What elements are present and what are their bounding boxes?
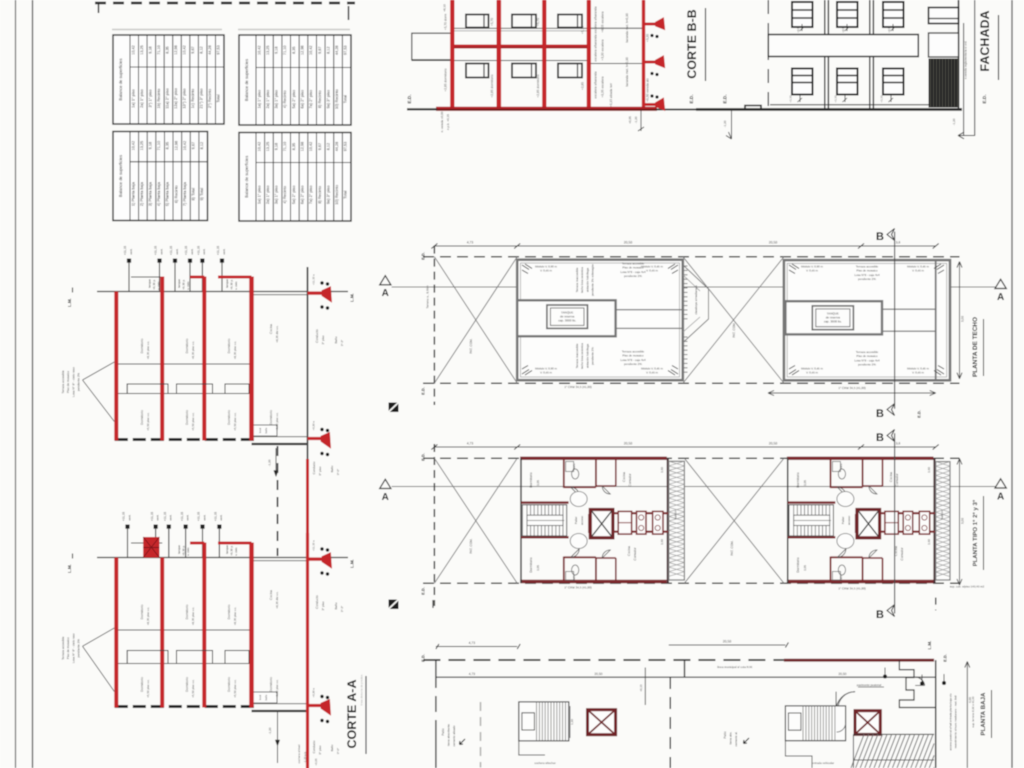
svg-text:9) Total: 9) Total: [199, 188, 204, 201]
svg-text:+11,15: +11,15: [197, 512, 201, 522]
svg-text:Dormitorio: Dormitorio: [796, 557, 800, 572]
svg-text:13,25: 13,25: [266, 142, 270, 152]
svg-text:Baño: Baño: [334, 336, 338, 343]
svg-text:44,28: 44,28: [335, 142, 339, 152]
svg-text:Comedor: Comedor: [628, 473, 632, 487]
svg-text:6a) 2° piso: 6a) 2° piso: [300, 90, 305, 109]
svg-text:E.D.: E.D.: [421, 387, 426, 395]
svg-text:B: B: [876, 408, 884, 420]
svg-text:3,05: 3,05: [536, 480, 540, 486]
svg-text:+11,15 v.: +11,15 v.: [312, 274, 316, 285]
svg-text:3) Planta baja: 3) Planta baja: [148, 181, 153, 206]
svg-text:cemento alisado: cemento alisado: [452, 725, 456, 746]
svg-text:9a) 3° piso: 9a) 3° piso: [325, 90, 330, 109]
svg-text:PAT. COM.: PAT. COM.: [732, 322, 736, 338]
svg-text:6a) 2° piso: 6a) 2° piso: [300, 185, 305, 204]
svg-text:10,42: 10,42: [309, 45, 313, 55]
svg-text:3° piso: 3° piso: [321, 601, 325, 611]
svg-text:v. cielo: v. cielo: [234, 281, 238, 290]
svg-text:tanque: tanque: [225, 545, 229, 554]
svg-text:+5,70: +5,70: [490, 18, 494, 26]
svg-text:+1,10: +1,10: [834, 95, 838, 103]
svg-text:9,67: 9,67: [192, 142, 196, 149]
svg-text:12a) 2° piso: 12a) 2° piso: [173, 88, 178, 109]
svg-text:9a) 3° piso: 9a) 3° piso: [325, 185, 330, 204]
svg-text:+11,15: +11,15: [197, 246, 201, 256]
svg-text:+9,30 p.: +9,30 p.: [230, 279, 234, 290]
svg-text:1° CRM 34,5 (41,00): 1° CRM 34,5 (41,00): [838, 587, 866, 591]
svg-text:+9,30 p.: +9,30 p.: [152, 279, 156, 290]
svg-text:21°) 3° piso: 21°) 3° piso: [199, 88, 204, 108]
svg-text:-1,20: -1,20: [634, 116, 638, 123]
svg-text:3,8: 3,8: [896, 442, 901, 446]
svg-text:+5,70 dorm: +5,70 dorm: [444, 14, 448, 31]
svg-text:vent.: vent.: [129, 248, 133, 254]
svg-text:E.D.: E.D.: [407, 95, 412, 104]
svg-text:0° piso: 0° piso: [318, 466, 322, 475]
svg-text:20,50: 20,50: [624, 442, 633, 446]
svg-text:+5,70: +5,70: [581, 26, 585, 34]
svg-text:2) Planta baja: 2) Planta baja: [139, 181, 144, 206]
svg-text:+0,05: +0,05: [628, 116, 632, 124]
svg-text:71,10: 71,10: [157, 141, 161, 151]
svg-text:3,60: 3,60: [927, 467, 931, 473]
svg-text:20,50: 20,50: [769, 241, 778, 245]
svg-text:+0,15: +0,15: [639, 684, 643, 692]
svg-text:Baño: Baño: [334, 602, 338, 609]
svg-text:Baño: Baño: [573, 574, 576, 581]
svg-text:A: A: [382, 492, 389, 503]
svg-text:cap. 3000 lts.: cap. 3000 lts.: [824, 320, 842, 324]
svg-text:Dormitorio: Dormitorio: [227, 677, 231, 692]
svg-text:9,18: 9,18: [149, 142, 153, 149]
svg-text:n.p.b. +0,15: n.p.b. +0,15: [446, 114, 450, 130]
svg-text:+11,15: +11,15: [169, 246, 173, 256]
svg-text:1c) Recinto: 1c) Recinto: [190, 89, 195, 109]
svg-text:8,12: 8,12: [200, 142, 204, 149]
svg-text:10,42: 10,42: [131, 45, 135, 55]
svg-text:10,42: 10,42: [131, 141, 135, 151]
svg-text:+11,15: +11,15: [122, 512, 126, 522]
svg-text:PLANTA TIPO 1° 2° y 3°: PLANTA TIPO 1° 2° y 3°: [972, 499, 979, 566]
svg-text:cochera s/techar: cochera s/techar: [534, 761, 555, 765]
svg-text:sup. terreno 8,66 x 41,00: sup. terreno 8,66 x 41,00: [971, 696, 975, 728]
svg-text:4,73: 4,73: [467, 442, 474, 446]
svg-text:vent.: vent.: [175, 248, 179, 254]
svg-text:techo losa cerámica: techo losa cerámica: [580, 343, 584, 369]
svg-text:V. 0,45 m: V. 0,45 m: [646, 371, 658, 375]
svg-text:+5,50 piso v.c.: +5,50 piso v.c.: [146, 679, 150, 698]
svg-text:sup. cub. s/piso 140,40 m2: sup. cub. s/piso 140,40 m2: [950, 585, 985, 589]
svg-text:v. cielo: v. cielo: [186, 547, 190, 556]
svg-text:10,42: 10,42: [183, 45, 187, 55]
svg-text:44,28: 44,28: [335, 45, 339, 55]
svg-text:Total: Total: [216, 94, 221, 102]
svg-text:12,98: 12,98: [301, 142, 305, 152]
svg-text:+8,10: +8,10: [443, 4, 447, 12]
svg-text:Cocina: Cocina: [627, 546, 631, 556]
svg-text:CORTE B-B: CORTE B-B: [685, 9, 699, 78]
svg-text:1a) 1° piso: 1a) 1° piso: [256, 90, 261, 109]
svg-text:V. 0,45 m: V. 0,45 m: [540, 371, 552, 375]
svg-text:+2,85 dormitorio: +2,85 dormitorio: [444, 68, 448, 91]
svg-text:8,12: 8,12: [200, 46, 204, 53]
svg-text:4) Planta baja: 4) Planta baja: [156, 181, 161, 206]
svg-text:V. 0,45 m: V. 0,45 m: [806, 371, 818, 375]
svg-text:3°-3°: 3°-3°: [340, 606, 344, 613]
svg-text:3,60: 3,60: [660, 539, 664, 545]
svg-text:10,42: 10,42: [309, 142, 313, 152]
svg-text:0°-0°: 0°-0°: [336, 748, 340, 754]
svg-text:Terraza inaccesible: Terraza inaccesible: [575, 267, 579, 292]
svg-text:+8,35 piso v.c.: +8,35 piso v.c.: [191, 607, 195, 626]
svg-text:PAT. COM.: PAT. COM.: [730, 540, 734, 556]
svg-text:PAT. COM.: PAT. COM.: [469, 338, 473, 354]
svg-text:10) Recinto: 10) Recinto: [334, 185, 339, 205]
svg-text:8,12: 8,12: [326, 47, 330, 54]
svg-text:2a) 1° piso: 2a) 1° piso: [139, 89, 144, 108]
svg-text:Dormitorio: Dormitorio: [227, 410, 231, 425]
svg-text:Cocina: Cocina: [269, 324, 273, 334]
svg-text:Comedor: Comedor: [633, 547, 637, 561]
svg-text:-1,20: -1,20: [268, 727, 272, 734]
svg-text:baranda met. h=0,90: baranda met. h=0,90: [625, 57, 629, 87]
svg-text:71,10: 71,10: [157, 45, 161, 55]
svg-text:0° piso: 0° piso: [318, 745, 322, 754]
svg-text:+11,15: +11,15: [163, 512, 167, 522]
svg-text:V. 0,45 m: V. 0,45 m: [540, 269, 552, 273]
svg-text:12,98: 12,98: [301, 45, 305, 55]
svg-text:Dormitorio: Dormitorio: [185, 410, 189, 425]
svg-text:97,53: 97,53: [344, 142, 348, 152]
svg-text:71,10: 71,10: [283, 142, 287, 152]
svg-text:7a) 2° piso: 7a) 2° piso: [308, 185, 313, 204]
svg-text:+4,9: +4,9: [887, 27, 891, 33]
svg-text:8,35: 8,35: [166, 142, 170, 149]
svg-text:+4,9: +4,9: [841, 27, 845, 33]
svg-text:baranda met. h=0,90: baranda met. h=0,90: [625, 13, 629, 43]
svg-text:13°) 2° piso: 13°) 2° piso: [182, 88, 187, 108]
svg-text:3°-3°: 3°-3°: [340, 340, 344, 347]
svg-text:Palier: Palier: [841, 517, 845, 525]
svg-text:línea divisoria de predios: línea divisoria de predios: [360, 674, 364, 706]
svg-text:pendiente 2%: pendiente 2%: [77, 372, 81, 391]
svg-text:4,73: 4,73: [469, 641, 476, 645]
svg-text:tanque: tanque: [148, 279, 152, 288]
svg-text:2a) 1° piso: 2a) 1° piso: [265, 185, 270, 204]
svg-text:44,28: 44,28: [208, 45, 212, 55]
svg-text:97,53: 97,53: [217, 45, 221, 55]
svg-text:L.M.: L.M.: [350, 293, 355, 302]
svg-text:+9,30 p.: +9,30 p.: [182, 545, 186, 556]
svg-text:+2,85 dormitorio: +2,85 dormitorio: [490, 74, 494, 97]
svg-text:A: A: [997, 292, 1004, 303]
svg-text:tierra abs.: tierra abs.: [729, 731, 733, 744]
svg-text:tanque: tanque: [225, 279, 229, 288]
svg-text:13,25: 13,25: [266, 45, 270, 55]
svg-text:balcón: balcón: [940, 510, 944, 519]
svg-text:Dormitorio: Dormitorio: [185, 604, 189, 619]
svg-text:8) Total: 8) Total: [191, 188, 196, 201]
svg-text:n. vereda ±0,00: n. vereda ±0,00: [440, 111, 444, 132]
svg-text:71,10: 71,10: [283, 45, 287, 55]
svg-text:Dormitorio: Dormitorio: [185, 677, 189, 692]
svg-text:E.D.: E.D.: [421, 252, 426, 260]
svg-text:Cocina: Cocina: [269, 590, 273, 600]
svg-text:Balance de superficies: Balance de superficies: [244, 156, 249, 198]
svg-text:Baño: Baño: [573, 463, 576, 470]
svg-text:Baño: Baño: [840, 463, 843, 470]
svg-text:1a) 1° piso: 1a) 1° piso: [130, 89, 135, 108]
svg-text:20,50: 20,50: [594, 672, 602, 676]
svg-text:10) Recinto: 10) Recinto: [334, 89, 339, 109]
svg-text:-1,20: -1,20: [268, 459, 272, 466]
svg-text:9,67: 9,67: [318, 143, 322, 150]
svg-text:Losa N° 8° - cielo raso: Losa N° 8° - cielo raso: [71, 633, 75, 663]
svg-text:3,60: 3,60: [660, 467, 664, 473]
svg-text:E.D.: E.D.: [421, 587, 426, 595]
svg-text:5a) 2° piso: 5a) 2° piso: [291, 185, 296, 204]
svg-text:A: A: [382, 288, 389, 299]
svg-text:tanque: tanque: [177, 545, 181, 554]
svg-text:vent.: vent.: [202, 248, 206, 254]
svg-text:8) Recinto: 8) Recinto: [317, 90, 322, 108]
svg-text:pendiente 2%: pendiente 2%: [591, 347, 595, 365]
svg-text:9,18: 9,18: [275, 47, 279, 54]
svg-text:9,67: 9,67: [318, 47, 322, 54]
svg-text:Dormitorio: Dormitorio: [140, 677, 144, 692]
svg-text:3,05: 3,05: [536, 565, 540, 571]
svg-text:vent.: vent.: [185, 514, 189, 520]
svg-text:línea municipal s/ cota N.M.: línea municipal s/ cota N.M.: [717, 665, 753, 669]
svg-text:techo losa cerámica: techo losa cerámica: [580, 267, 584, 293]
svg-text:97,53: 97,53: [344, 45, 348, 55]
svg-text:claraboya s/medianera: claraboya s/medianera: [694, 285, 698, 315]
svg-text:Dormitorio: Dormitorio: [529, 472, 533, 487]
svg-text:3a) 1° piso: 3a) 1° piso: [274, 90, 279, 109]
svg-text:9,67: 9,67: [191, 46, 195, 53]
svg-text:Conducto: Conducto: [315, 329, 319, 343]
svg-text:+8,35 piso v.c.: +8,35 piso v.c.: [191, 341, 195, 360]
svg-text:8,35: 8,35: [292, 143, 296, 150]
svg-text:Dormitorio: Dormitorio: [227, 338, 231, 353]
svg-text:+5,50 piso v.c.: +5,50 piso v.c.: [233, 679, 237, 698]
svg-text:+0,30 v.: +0,30 v.: [312, 420, 316, 430]
svg-text:Comedor: Comedor: [900, 547, 904, 561]
svg-text:1° CRM 34,5 (41,00): 1° CRM 34,5 (41,00): [564, 586, 592, 590]
svg-text:1° CRM 34,5 (41,00): 1° CRM 34,5 (41,00): [838, 386, 866, 390]
svg-text:baño: baño: [265, 427, 268, 433]
svg-text:V. 0,45 m: V. 0,45 m: [912, 269, 924, 273]
svg-text:cochera s/nivel: cochera s/nivel: [297, 744, 301, 763]
svg-text:9,18: 9,18: [275, 143, 279, 150]
svg-text:+5,50 piso v.c.: +5,50 piso v.c.: [146, 412, 150, 431]
svg-text:13,25: 13,25: [140, 141, 144, 151]
svg-text:acceso: acceso: [580, 515, 584, 525]
svg-text:Dormitorio: Dormitorio: [185, 338, 189, 353]
svg-text:+5,70: +5,70: [536, 18, 540, 26]
svg-text:+11,15: +11,15: [184, 246, 188, 256]
svg-text:3,05: 3,05: [803, 480, 807, 486]
svg-text:Dormitorio: Dormitorio: [796, 472, 800, 487]
svg-text:pavimento peatonal: pavimento peatonal: [857, 683, 882, 687]
svg-text:acceso: acceso: [847, 515, 851, 525]
svg-text:L.M.: L.M.: [350, 559, 355, 568]
svg-text:+0,30 vereda alz: +0,30 vereda alz: [646, 78, 650, 102]
svg-text:aislación hidrófuga: aislación hidrófuga: [585, 268, 589, 292]
svg-text:B: B: [876, 609, 884, 621]
svg-text:vent.: vent.: [155, 514, 159, 520]
svg-text:L.M.: L.M.: [67, 564, 72, 573]
svg-text:+5,50 piso v.c.: +5,50 piso v.c.: [191, 679, 195, 698]
svg-text:+11,15: +11,15: [154, 246, 158, 256]
svg-text:+11,15: +11,15: [150, 512, 154, 522]
svg-text:+8,35 piso v.c.: +8,35 piso v.c.: [146, 607, 150, 626]
svg-text:+8,35 piso v.c.: +8,35 piso v.c.: [233, 341, 237, 360]
svg-text:vent.: vent.: [190, 248, 194, 254]
svg-text:+0,15 alzada terr: +0,15 alzada terr: [609, 82, 613, 107]
svg-text:aislación hidrófuga: aislación hidrófuga: [585, 344, 589, 368]
svg-text:Piso de mosaico: Piso de mosaico: [66, 637, 70, 659]
svg-text:vent.: vent.: [219, 514, 223, 520]
svg-text:10,42: 10,42: [257, 45, 261, 55]
svg-text:+9,30 p.: +9,30 p.: [230, 545, 234, 556]
svg-text:PAT. COM.: PAT. COM.: [469, 538, 473, 554]
svg-text:3,00: 3,00: [961, 316, 965, 322]
svg-text:10,42: 10,42: [183, 141, 187, 151]
svg-text:Balance de superficies: Balance de superficies: [118, 155, 123, 197]
svg-text:1,20: 1,20: [570, 719, 574, 725]
svg-text:+11,15: +11,15: [123, 246, 127, 256]
svg-text:E.D.: E.D.: [689, 95, 694, 104]
svg-text:4,73: 4,73: [469, 672, 475, 676]
svg-text:tierra absorbente: tierra absorbente: [447, 724, 451, 746]
svg-text:3a) 1° piso: 3a) 1° piso: [274, 185, 279, 204]
svg-text:7a) 2° piso: 7a) 2° piso: [308, 90, 313, 109]
svg-text:3,60: 3,60: [927, 539, 931, 545]
svg-text:Piso de mosaico: Piso de mosaico: [66, 371, 70, 393]
svg-text:E.D.: E.D.: [421, 654, 426, 662]
svg-text:+1,10: +1,10: [789, 95, 793, 103]
svg-text:cemento al.: cemento al.: [734, 731, 738, 746]
svg-text:8,35: 8,35: [165, 46, 169, 53]
svg-text:3°) 1° piso: 3°) 1° piso: [147, 89, 152, 107]
svg-text:vent.: vent.: [169, 514, 173, 520]
svg-text:+2,85 dormitorio: +2,85 dormitorio: [536, 74, 540, 97]
svg-text:V. 0,45 m: V. 0,45 m: [646, 269, 658, 273]
svg-text:Losa N° 8° - cielo raso: Losa N° 8° - cielo raso: [71, 367, 75, 397]
svg-text:3,00: 3,00: [961, 518, 965, 524]
svg-text:Dormitorio: Dormitorio: [269, 677, 273, 692]
svg-text:4,73: 4,73: [467, 241, 474, 245]
svg-text:revestimiento s/muro medianero: revestimiento s/muro medianero - mat. 8x…: [954, 695, 958, 749]
svg-text:n.vereda reglamentaria s/ ord.: n.vereda reglamentaria s/ ord.: [964, 41, 968, 80]
svg-text:Balance de superficies: Balance de superficies: [118, 58, 123, 100]
svg-text:vent.: vent.: [159, 248, 163, 254]
svg-text:B: B: [876, 432, 884, 444]
svg-text:local: local: [259, 427, 262, 433]
svg-text:1b) Recinto: 1b) Recinto: [156, 89, 161, 109]
svg-text:+4,9: +4,9: [796, 27, 800, 33]
svg-text:+5,50 piso v.c.: +5,50 piso v.c.: [233, 412, 237, 431]
svg-text:+5,50 piso v.c.: +5,50 piso v.c.: [191, 412, 195, 431]
svg-text:+3,20: +3,20: [646, 34, 650, 42]
svg-text:20,50: 20,50: [838, 672, 846, 676]
svg-text:Terraza accesible: Terraza accesible: [61, 370, 65, 394]
svg-text:3° piso: 3° piso: [321, 335, 325, 345]
svg-text:Dormitorio: Dormitorio: [140, 410, 144, 425]
svg-text:entrada vehicular: entrada vehicular: [812, 761, 834, 765]
svg-text:Total: Total: [343, 95, 348, 103]
svg-text:pendiente 2%: pendiente 2%: [858, 363, 876, 367]
svg-text:Terraza accesible: Terraza accesible: [61, 636, 65, 660]
svg-text:V. 0,45 m: V. 0,45 m: [806, 269, 818, 273]
svg-text:Baño: Baño: [330, 465, 334, 472]
svg-text:5) Planta baja: 5) Planta baja: [165, 181, 170, 206]
svg-text:Patio: Patio: [723, 731, 727, 738]
svg-text:pendiente 2%: pendiente 2%: [858, 277, 876, 281]
svg-text:+3,20 escalera: +3,20 escalera: [601, 39, 605, 60]
svg-text:tanque: tanque: [177, 279, 181, 288]
svg-text:Conducto: Conducto: [312, 461, 316, 474]
svg-text:A: A: [997, 492, 1004, 503]
svg-text:+2,85: +2,85: [581, 82, 585, 90]
svg-text:2°) Recinto: 2°) Recinto: [207, 89, 212, 108]
svg-text:Dormitorio: Dormitorio: [140, 338, 144, 353]
svg-text:-1,20 p.b.: -1,20 p.b.: [303, 751, 307, 763]
svg-text:+9,30 p.: +9,30 p.: [182, 279, 186, 290]
svg-text:Total: Total: [343, 191, 348, 199]
svg-text:local: local: [259, 694, 262, 700]
svg-text:vent.: vent.: [222, 248, 226, 254]
svg-text:Baño: Baño: [840, 574, 843, 581]
svg-text:8,12: 8,12: [326, 143, 330, 150]
svg-text:20,50: 20,50: [624, 241, 633, 245]
svg-text:5a) 2° piso: 5a) 2° piso: [291, 90, 296, 109]
svg-text:Comedor: Comedor: [895, 473, 899, 487]
svg-text:L.M.: L.M.: [927, 641, 932, 650]
svg-text:+1,10: +1,10: [880, 95, 884, 103]
svg-text:Dormitorio: Dormitorio: [529, 557, 533, 572]
svg-text:Baño: Baño: [330, 744, 334, 751]
svg-text:FACHADA: FACHADA: [978, 10, 992, 71]
svg-text:L.M.: L.M.: [67, 298, 72, 307]
svg-text:1) Planta baja: 1) Planta baja: [130, 181, 135, 206]
svg-text:Dormitorio: Dormitorio: [140, 604, 144, 619]
svg-text:4) Recinto: 4) Recinto: [282, 186, 287, 204]
svg-text:CORTE A-A: CORTE A-A: [345, 680, 359, 749]
svg-text:Conducto: Conducto: [312, 740, 316, 753]
svg-text:-1,20: -1,20: [723, 120, 727, 127]
svg-text:8) Recinto: 8) Recinto: [317, 186, 322, 204]
svg-text:12,98: 12,98: [174, 45, 178, 55]
svg-text:9,18: 9,18: [148, 46, 152, 53]
svg-text:E.D.: E.D.: [723, 95, 728, 104]
svg-text:12,98: 12,98: [174, 141, 178, 151]
svg-text:20,50: 20,50: [769, 442, 778, 446]
svg-text:v. cielo: v. cielo: [186, 281, 190, 290]
svg-text:4) Recinto: 4) Recinto: [282, 90, 287, 108]
svg-text:+0,30 v.: +0,30 v.: [312, 687, 316, 697]
svg-text:3,05: 3,05: [803, 565, 807, 571]
svg-text:13,25: 13,25: [140, 45, 144, 55]
svg-text:Cocina: Cocina: [889, 472, 893, 482]
svg-text:10,42: 10,42: [257, 142, 261, 152]
svg-text:PLANTA BAJA: PLANTA BAJA: [980, 692, 987, 735]
svg-text:+11,15 v.: +11,15 v.: [312, 540, 316, 551]
svg-text:+8,35 piso v.c.: +8,35 piso v.c.: [233, 607, 237, 626]
svg-text:8,35: 8,35: [292, 47, 296, 54]
